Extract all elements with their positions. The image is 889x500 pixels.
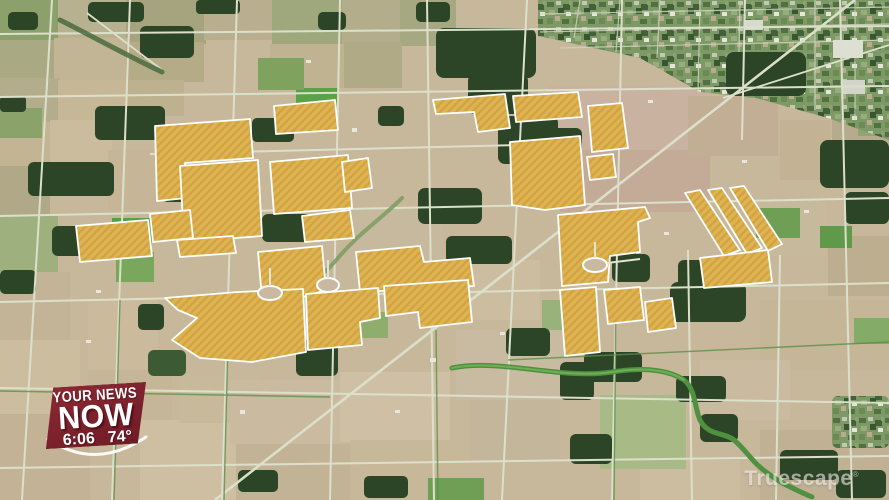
solar-area xyxy=(604,287,644,324)
registered-mark: ® xyxy=(853,470,859,479)
logo-badge: YOUR NEWS NOW 6:06 74° xyxy=(42,382,150,449)
solar-area xyxy=(587,154,616,180)
solar-area xyxy=(302,210,354,242)
solar-area xyxy=(177,236,236,257)
solar-area xyxy=(274,100,338,134)
solar-area xyxy=(588,103,628,152)
broadcast-frame: YOUR NEWS NOW 6:06 74° Truescape® xyxy=(0,0,889,500)
solar-area xyxy=(76,220,152,262)
station-logo: YOUR NEWS NOW 6:06 74° xyxy=(44,385,160,471)
watermark-text: Truescape xyxy=(744,467,852,490)
solar-area xyxy=(513,92,582,122)
solar-area xyxy=(645,298,676,332)
solar-area xyxy=(270,155,352,214)
solar-area xyxy=(560,287,600,356)
logo-line2: NOW xyxy=(46,400,146,432)
truescape-watermark: Truescape® xyxy=(744,467,859,491)
solar-area xyxy=(342,158,372,192)
solar-area xyxy=(150,210,193,242)
solar-area xyxy=(510,136,585,210)
